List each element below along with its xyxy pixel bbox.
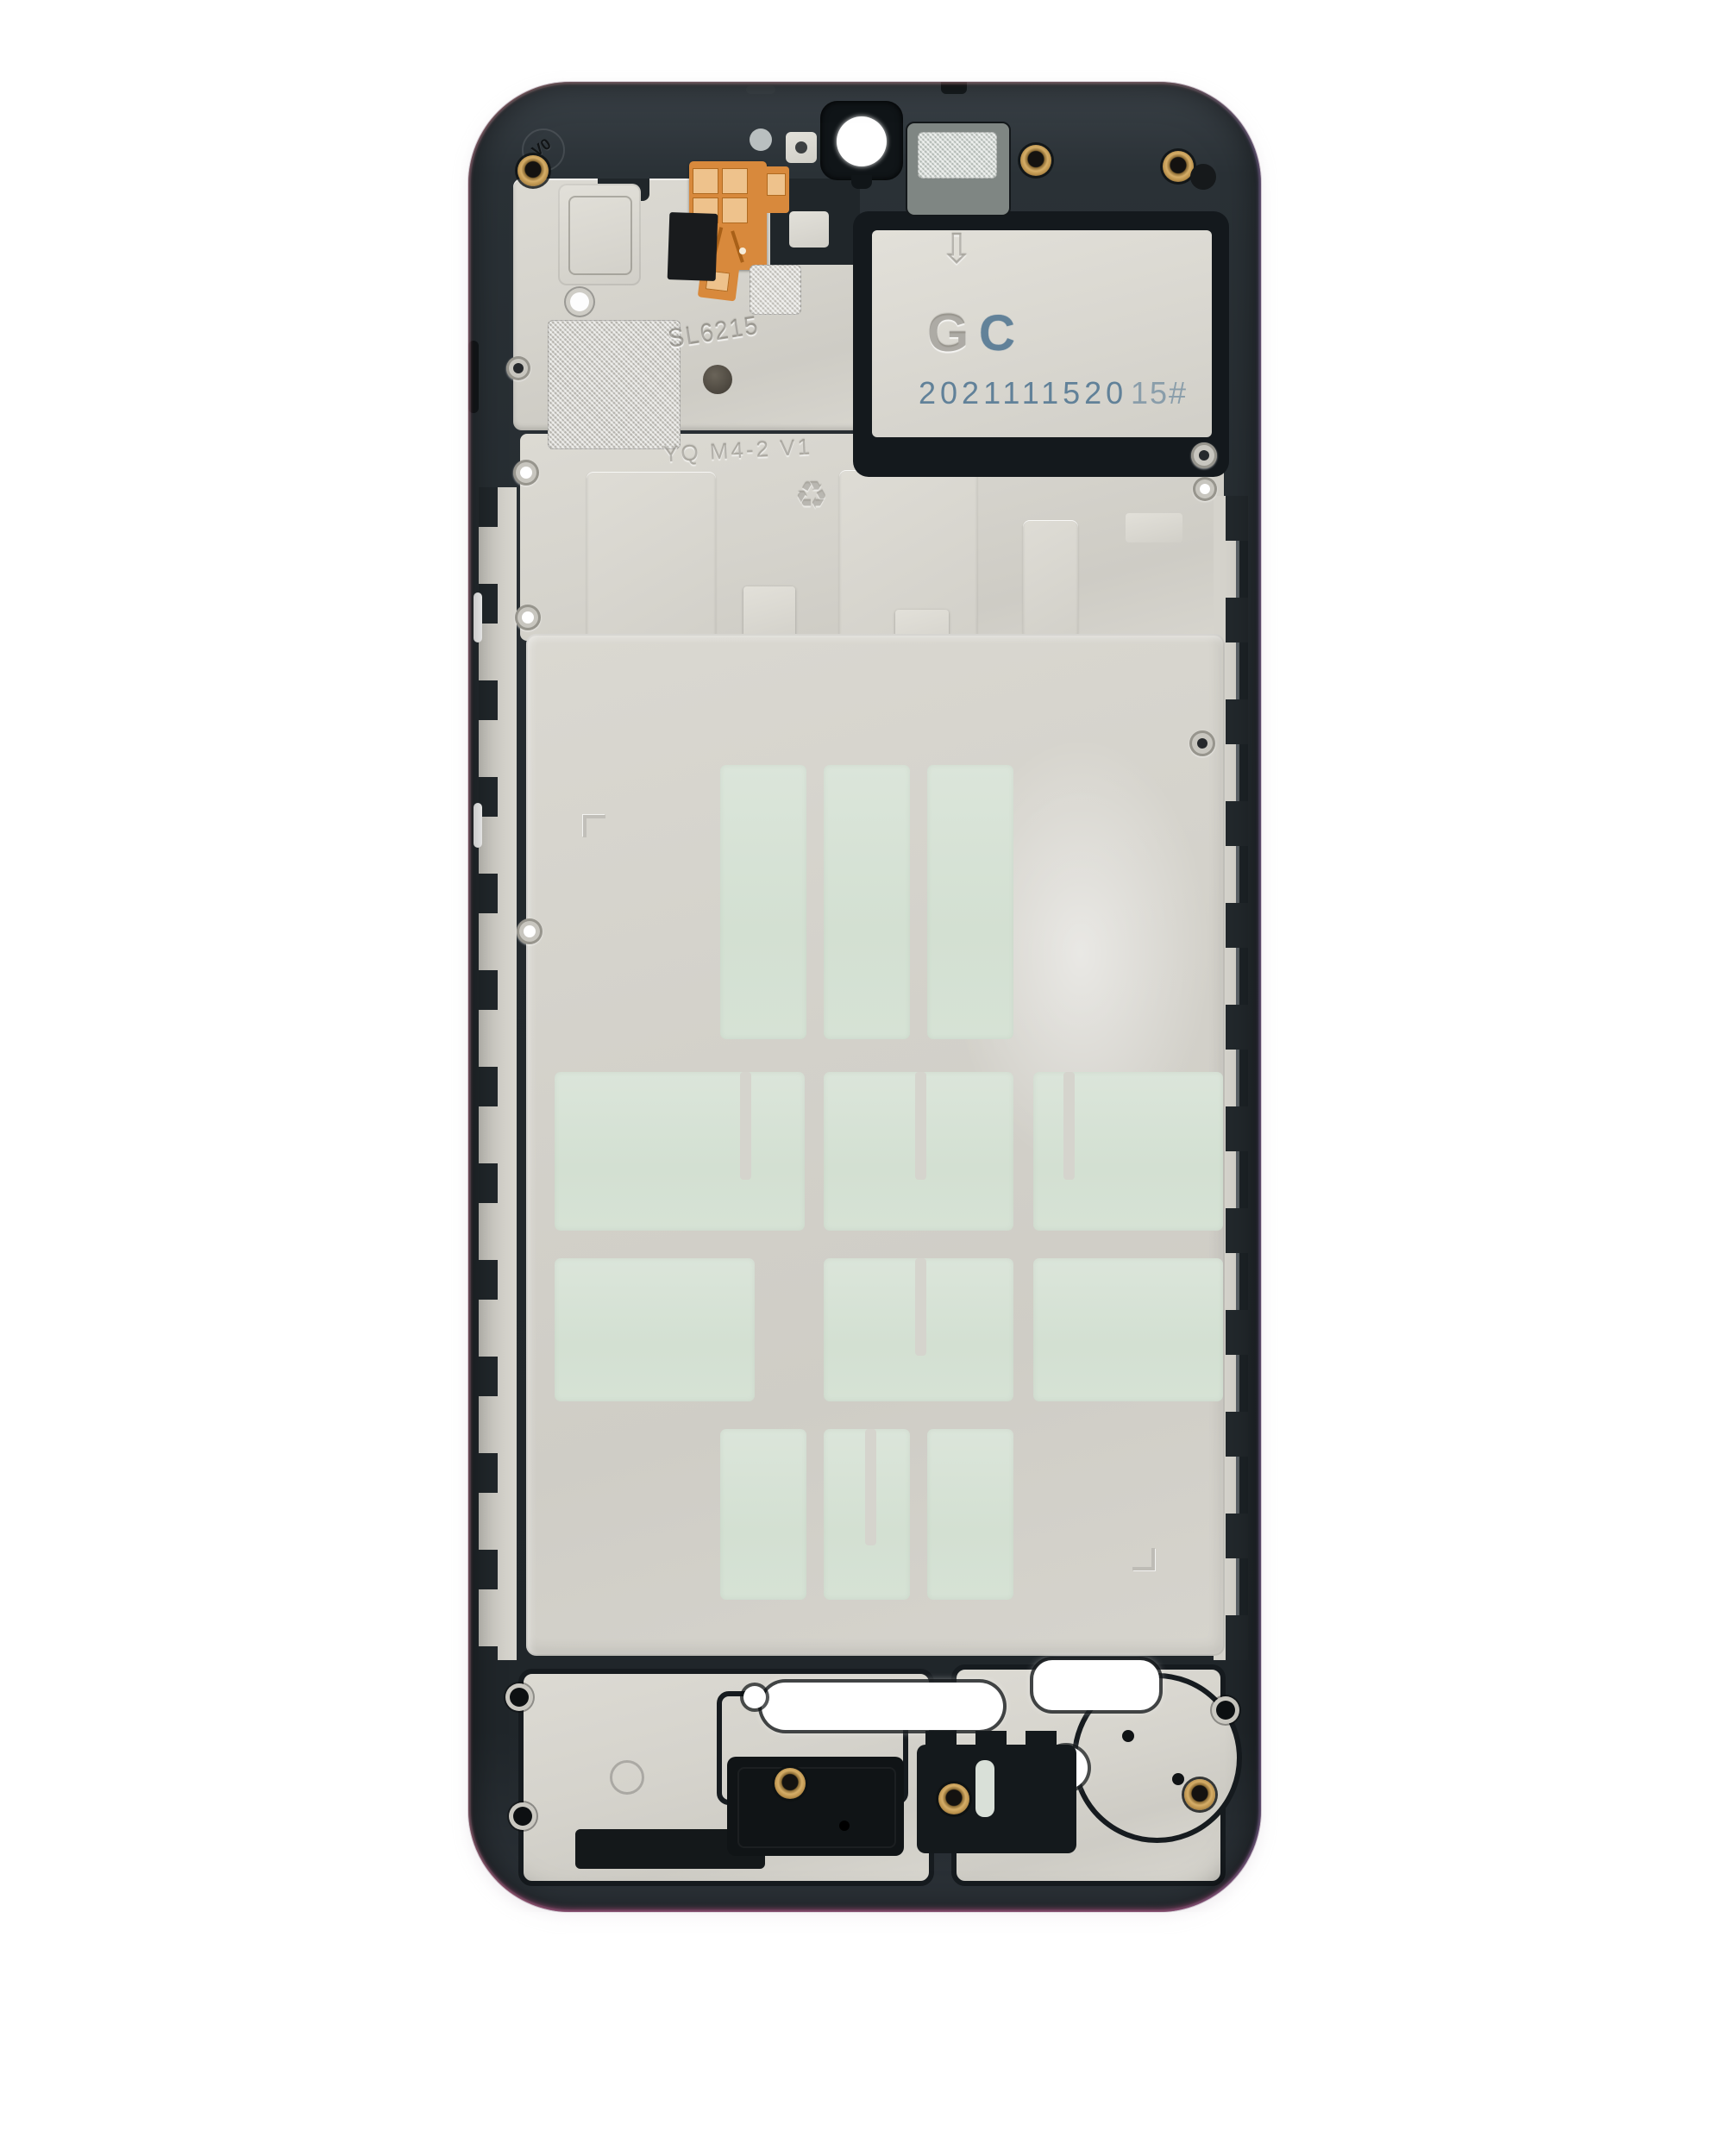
screw-boss — [1193, 477, 1217, 501]
screw-hole-dark — [513, 1807, 532, 1826]
speaker-box-inner — [737, 1767, 896, 1848]
station-code: 15# — [1131, 375, 1188, 411]
speaker-box — [727, 1757, 904, 1856]
adhesive-pad — [927, 765, 1013, 1039]
screw-boss — [1189, 730, 1215, 756]
adhesive-pad — [824, 1258, 1013, 1401]
black-foam-sticker — [668, 212, 718, 281]
bracket-hole — [795, 141, 807, 154]
flex-pad — [767, 173, 786, 196]
top-rail-notch — [941, 82, 967, 94]
antenna-mesh-small — [750, 265, 801, 315]
plate-corner-mark-br — [1132, 1548, 1155, 1570]
adhesive-pad — [1033, 1072, 1223, 1231]
date-code: 2021111520 — [919, 375, 1127, 411]
top-rail-slot — [746, 85, 775, 94]
flex-arm — [763, 166, 789, 213]
screw-eyelet — [1184, 1779, 1215, 1810]
adhesive-pad — [720, 765, 806, 1039]
midframe-inner: ⇩ G C 2021111520 15# — [468, 82, 1261, 1912]
rail-through-slot — [474, 592, 482, 642]
screw-eyelet — [1020, 145, 1051, 176]
flex-pad — [722, 197, 748, 223]
down-arrow-icon: ⇩ — [939, 225, 975, 273]
plate-letter-printed: C — [979, 304, 1015, 362]
screw-boss — [515, 605, 541, 630]
screw-hole — [520, 467, 532, 479]
screw-boss — [517, 918, 543, 944]
screw-hole — [522, 611, 534, 624]
adhesive-pad — [555, 1072, 805, 1231]
screw-dark — [1197, 738, 1207, 749]
screw-hole-dark — [510, 1688, 529, 1707]
screw-hole-dark — [1216, 1701, 1235, 1720]
pin-hole — [1172, 1773, 1184, 1785]
phone-midframe: ⇩ G C 2021111520 15# — [468, 82, 1261, 1912]
through-slot — [762, 1683, 1003, 1730]
earpiece-speaker-mesh — [906, 122, 1011, 216]
bracket-square — [558, 184, 641, 285]
screw-hole-white — [570, 292, 589, 311]
product-photo-scene: ⇩ G C 2021111520 15# — [0, 0, 1725, 2156]
castellation-teeth — [925, 1731, 1063, 1746]
dark-dot — [1190, 164, 1216, 190]
screw-boss — [513, 460, 539, 486]
metal-shield-gc: ⇩ G C 2021111520 15# — [872, 230, 1212, 437]
plate-dimple — [610, 1760, 644, 1795]
rail-through-slot — [474, 803, 482, 848]
screw-bracket — [786, 132, 817, 163]
screw-eyelet — [1163, 151, 1194, 182]
adhesive-pad — [720, 1429, 806, 1600]
flex-pad — [693, 168, 718, 194]
plateau-left — [586, 472, 716, 644]
recycle-icon: ♻ — [794, 473, 830, 517]
through-slot — [1033, 1660, 1159, 1710]
through-hole — [743, 1686, 766, 1708]
adhesive-pad — [824, 765, 910, 1039]
camera-bezel-notch — [851, 175, 872, 189]
flex-trace — [731, 230, 744, 262]
bright-tab-3 — [1126, 513, 1182, 542]
screw-eyelet — [938, 1783, 969, 1814]
reflection-fade-overlay — [0, 1912, 1725, 2156]
screw-dark — [1199, 450, 1209, 461]
earpiece-mesh-inner — [918, 132, 997, 179]
screw-dark — [513, 363, 524, 373]
port-slot-pale — [975, 1760, 994, 1817]
adhesive-pad — [1033, 1258, 1223, 1401]
screw-boss — [1191, 442, 1217, 468]
flex-pad — [722, 168, 748, 194]
pin-hole — [839, 1821, 850, 1831]
adhesive-pad — [555, 1258, 755, 1401]
adhesive-pad — [824, 1429, 910, 1600]
metal-tab-small — [789, 211, 829, 248]
adhesive-pad — [927, 1429, 1013, 1600]
screw-eyelet — [517, 155, 549, 186]
side-key-cutout — [468, 341, 479, 413]
plate-letter-embossed: G — [927, 303, 969, 364]
screw-hole — [1200, 484, 1210, 494]
flex-via — [739, 248, 746, 254]
screw-eyelet — [775, 1768, 806, 1799]
pin-hole — [1122, 1730, 1134, 1742]
bracket-square-inner — [568, 196, 632, 275]
adhesive-pad — [824, 1072, 1013, 1231]
sensor-hole — [750, 128, 772, 151]
mic-hole — [703, 365, 732, 394]
antenna-mesh-large — [548, 320, 681, 449]
plate-corner-mark-tl — [583, 815, 605, 837]
front-camera-hole — [837, 116, 887, 166]
plateau-right — [1023, 520, 1078, 641]
screw-hole — [524, 925, 536, 937]
left-rail — [479, 487, 517, 1660]
